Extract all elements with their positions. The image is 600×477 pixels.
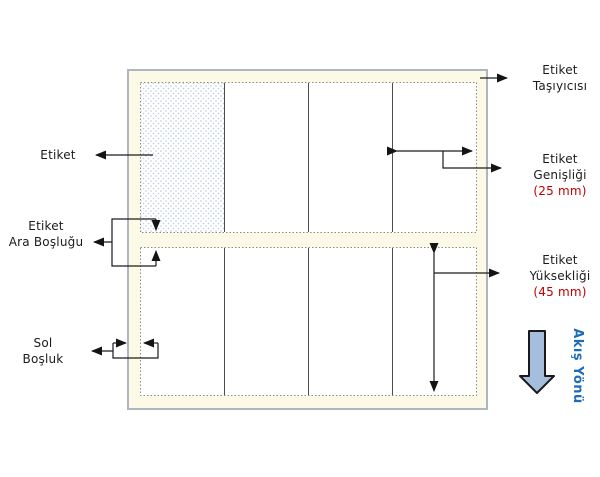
annotation-line: Sol [6, 335, 80, 351]
flow-direction-down-arrow-icon [520, 331, 554, 393]
annotation-line: Ara Boşluğu [2, 234, 90, 250]
annotation-etiket-genisligi: Etiket Genişliği (25 mm) [513, 151, 600, 199]
annotation-line: Yüksekliği [513, 268, 600, 284]
highlighted-label [141, 83, 224, 232]
flow-direction-label: Akış Yönü [567, 326, 585, 406]
annotation-line: Etiket [513, 252, 600, 268]
annotation-etiket-text: Etiket [28, 147, 88, 163]
annotation-etiket-ara-boslugu: Etiket Ara Boşluğu [2, 218, 90, 250]
annotation-line: Etiket [2, 218, 90, 234]
annotation-line: Genişliği [513, 167, 600, 183]
annotation-sol-bosluk: Sol Boşluk [6, 335, 80, 367]
annotation-etiket: Etiket [28, 147, 88, 163]
label-width-value: (25 mm) [513, 183, 600, 199]
label-spec-diagram: Etiket Etiket Taşıyıcısı Etiket Genişliğ… [0, 0, 600, 477]
annotation-line: Etiket [513, 151, 600, 167]
annotation-etiket-tasiyicisi: Etiket Taşıyıcısı [513, 62, 600, 94]
label-height-value: (45 mm) [513, 284, 600, 300]
diagram-drawing [0, 0, 600, 477]
annotation-line: Boşluk [6, 351, 80, 367]
annotation-line: Taşıyıcısı [513, 78, 600, 94]
annotation-etiket-yuksekligi: Etiket Yüksekliği (45 mm) [513, 252, 600, 300]
annotation-line: Etiket [513, 62, 600, 78]
